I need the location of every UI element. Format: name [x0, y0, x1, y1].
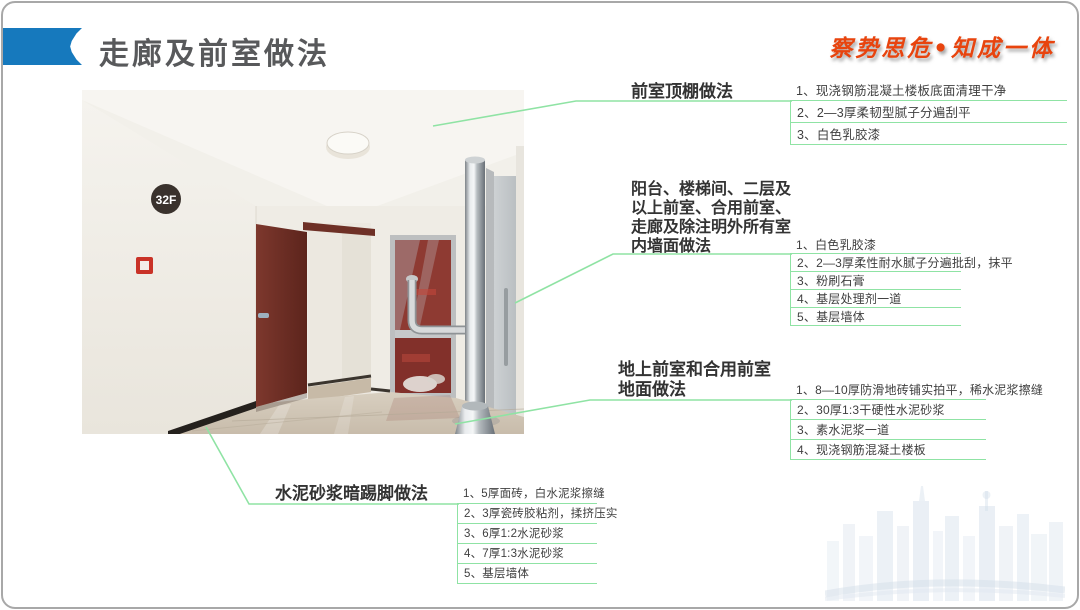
spec-item: 5、基层墙体: [457, 564, 597, 584]
annotation-title-wall: 阳台、楼梯间、二层及以上前室、合用前室、走廊及除注明外所有室内墙面做法: [631, 180, 801, 256]
drain-pipe-base-cap: [462, 402, 488, 411]
spec-item: 3、素水泥浆一道: [790, 420, 986, 440]
slide: 走廊及前室做法 察势思危•知成一体: [1, 1, 1079, 609]
drain-pipe: [465, 160, 485, 434]
page-title: 走廊及前室做法: [99, 29, 330, 73]
title-accent-flag: [3, 28, 82, 65]
spec-item: 3、6厚1:2水泥砂浆: [457, 524, 597, 544]
spec-item: 1、白色乳胶漆: [790, 236, 961, 254]
spec-list-ceiling: 1、现浇钢筋混凝土楼板底面清理干净 2、2—3厚柔韧型腻子分遍刮平 3、白色乳胶…: [790, 79, 1067, 145]
leader-wall: [515, 254, 792, 303]
svg-text:32F: 32F: [156, 193, 177, 207]
spec-list-floor: 1、8—10厚防滑地砖铺实拍平，稀水泥浆擦缝 2、30厚1:3干硬性水泥砂浆 3…: [790, 380, 986, 460]
spec-item: 2、2—3厚柔韧型腻子分遍刮平: [790, 101, 1067, 123]
ceiling-lamp: [327, 132, 369, 154]
floor-sign: 32F: [151, 184, 181, 214]
doorway-inner-wall: [342, 230, 371, 392]
spec-item: 2、3厚瓷砖胶粘剂，揉挤压实: [457, 504, 597, 524]
spec-item: 3、白色乳胶漆: [790, 123, 1067, 145]
room-photo: 32F: [82, 90, 524, 434]
spec-item: 4、7厚1:3水泥砂浆: [457, 544, 597, 564]
spec-list-wall: 1、白色乳胶漆 2、2—3厚柔性耐水腻子分遍批刮，抹平 3、粉刷石膏 4、基层处…: [790, 236, 961, 326]
spec-item: 5、基层墙体: [790, 308, 961, 326]
spec-item: 4、基层处理剂一道: [790, 290, 961, 308]
room-photo-canvas: 32F: [82, 90, 524, 434]
back-wall-skirting: [371, 389, 390, 391]
spec-item: 1、现浇钢筋混凝土楼板底面清理干净: [790, 79, 1067, 101]
annotation-title-floor: 地上前室和合用前室地面做法: [618, 360, 783, 400]
elevator-door: [486, 146, 524, 434]
spec-item: 2、30厚1:3干硬性水泥砂浆: [790, 400, 986, 420]
city-skyline-watermark: [825, 486, 1065, 601]
fire-alarm: [136, 257, 153, 274]
drain-pipe-top: [465, 157, 485, 164]
spec-item: 2、2—3厚柔性耐水腻子分遍批刮，抹平: [790, 254, 961, 272]
door-handle: [258, 313, 269, 318]
corridor-door: [256, 224, 307, 412]
spec-list-skirting: 1、5厚面砖，白水泥浆擦缝 2、3厚瓷砖胶粘剂，揉挤压实 3、6厚1:2水泥砂浆…: [457, 484, 597, 584]
annotation-title-ceiling: 前室顶棚做法: [631, 82, 733, 102]
spec-item: 4、现浇钢筋混凝土楼板: [790, 440, 986, 460]
spec-item: 1、8—10厚防滑地砖铺实拍平，稀水泥浆擦缝: [790, 380, 986, 400]
spec-item: 1、5厚面砖，白水泥浆擦缝: [457, 484, 597, 504]
annotation-title-skirting: 水泥砂浆暗踢脚做法: [275, 484, 428, 504]
spec-item: 3、粉刷石膏: [790, 272, 961, 290]
brand-motto: 察势思危•知成一体: [829, 29, 1055, 63]
